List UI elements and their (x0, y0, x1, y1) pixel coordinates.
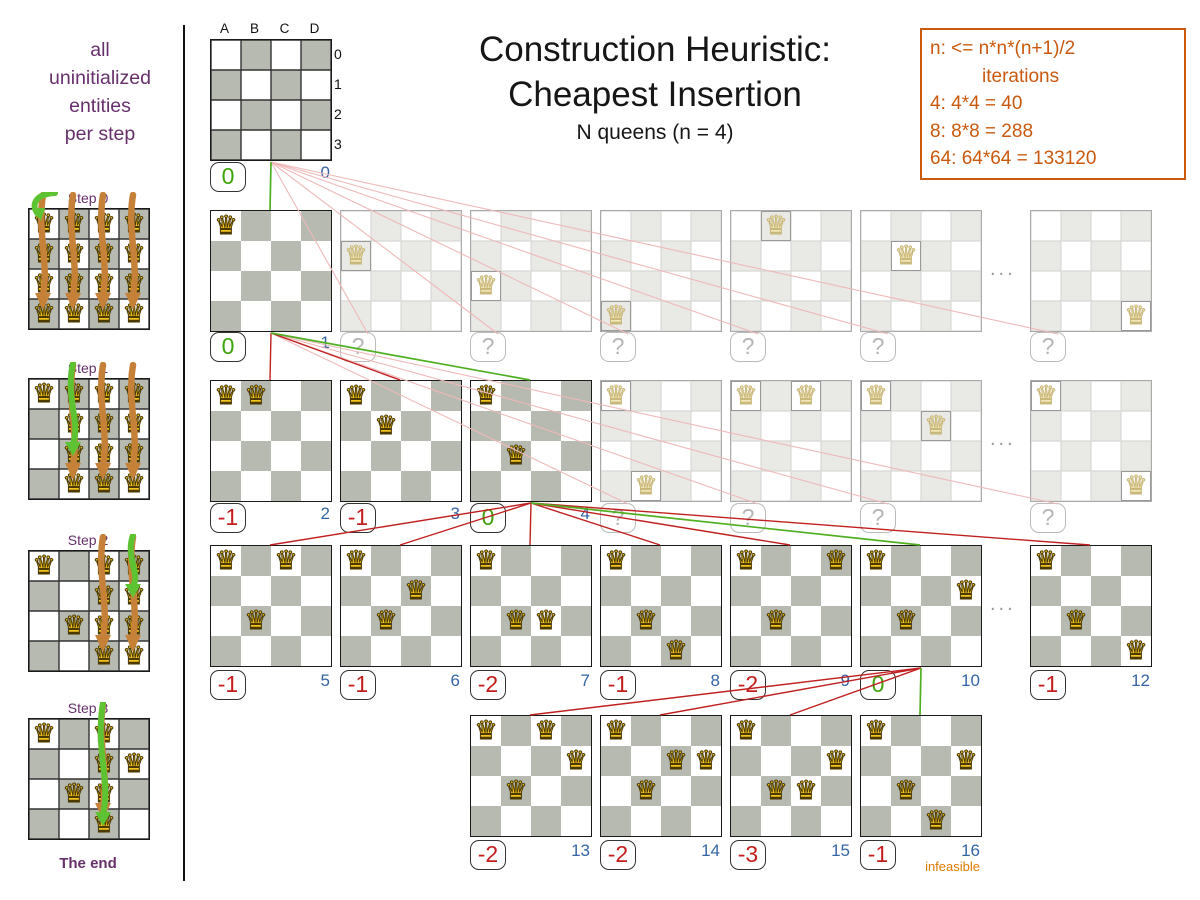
board-cell: ♛ (119, 209, 149, 239)
board-cell (211, 271, 241, 301)
board-cell (1091, 441, 1121, 471)
board-cell (501, 576, 531, 606)
board-cell (731, 241, 761, 271)
iteration-number: 5 (210, 671, 330, 691)
board-cell (791, 471, 821, 501)
board-cell: ♛ (761, 606, 791, 636)
iteration-number: 15 (730, 841, 850, 861)
board-cell (891, 576, 921, 606)
board-cell (561, 606, 591, 636)
board-cell (29, 439, 59, 469)
intro-line: uninitialized (18, 64, 182, 92)
queen-icon: ♛ (214, 381, 237, 411)
board-cell (271, 606, 301, 636)
board-cell: ♛ (471, 716, 501, 746)
chessboard: ♛ (210, 210, 332, 332)
column-label: C (270, 21, 300, 36)
queen-icon: ♛ (664, 636, 687, 666)
board-cell (951, 411, 981, 441)
board-cell (861, 576, 891, 606)
board-cell (601, 241, 631, 271)
board-cell (531, 301, 561, 331)
board-cell: ♛ (501, 441, 531, 471)
board-cell (861, 271, 891, 301)
board-cell (401, 381, 431, 411)
row-label: 2 (334, 106, 350, 122)
ellipsis: ... (990, 428, 1016, 451)
board-cell (531, 411, 561, 441)
board-cell (371, 301, 401, 331)
board-cell (119, 809, 149, 839)
board-cell (691, 381, 721, 411)
board-cell (241, 211, 271, 241)
queen-icon: ♛ (122, 269, 145, 299)
board-cell (471, 301, 501, 331)
board-cell (1121, 441, 1151, 471)
queen-icon: ♛ (734, 546, 757, 576)
board-cell (1091, 606, 1121, 636)
board-cell (761, 241, 791, 271)
board-cell (921, 716, 951, 746)
board-cell (59, 551, 89, 581)
iteration-number: 0 (210, 163, 330, 183)
board-cell (29, 581, 59, 611)
board-cell (471, 776, 501, 806)
board-cell: ♛ (29, 299, 59, 329)
board-cell (731, 636, 761, 666)
board-cell (271, 100, 301, 130)
board-cell (531, 806, 561, 836)
board-cell (501, 411, 531, 441)
board-cell: ♛ (791, 381, 821, 411)
chessboard: ♛♛♛♛♛♛♛♛♛♛ (28, 550, 150, 672)
queen-icon: ♛ (564, 746, 587, 776)
board-cell (241, 40, 271, 70)
divider-line (183, 25, 185, 881)
board-cell (821, 381, 851, 411)
board-cell: ♛ (601, 716, 631, 746)
queen-icon: ♛ (62, 409, 85, 439)
step-label: Step 3 (28, 700, 148, 716)
board-cell: ♛ (341, 241, 371, 271)
queen-icon: ♛ (1064, 606, 1087, 636)
chessboard: ♛♛ (340, 380, 462, 502)
board-cell (1061, 381, 1091, 411)
queen-icon: ♛ (534, 606, 557, 636)
board-cell (29, 749, 59, 779)
board-cell (471, 441, 501, 471)
board-cell (501, 241, 531, 271)
board-cell (861, 806, 891, 836)
board-cell (471, 806, 501, 836)
board-cell (301, 130, 331, 160)
queen-icon: ♛ (122, 551, 145, 581)
board-cell (471, 746, 501, 776)
board-cell: ♛ (501, 606, 531, 636)
step-label: Step 2 (28, 532, 148, 548)
queen-icon: ♛ (374, 606, 397, 636)
board-cell: ♛ (891, 241, 921, 271)
board-cell (821, 806, 851, 836)
board-cell: ♛ (119, 581, 149, 611)
board-cell (631, 576, 661, 606)
queen-icon: ♛ (274, 546, 297, 576)
board-cell (1031, 271, 1061, 301)
board-cell (59, 809, 89, 839)
board-cell (821, 716, 851, 746)
chessboard (210, 39, 332, 161)
board-cell (691, 441, 721, 471)
board-cell (401, 411, 431, 441)
board-cell (921, 776, 951, 806)
board-cell (1031, 301, 1061, 331)
board-cell (211, 636, 241, 666)
board-cell (561, 471, 591, 501)
board-cell (821, 411, 851, 441)
board-cell (471, 606, 501, 636)
board-cell (791, 211, 821, 241)
info-box-line: 4: 4*4 = 40 (930, 90, 1176, 118)
board-cell: ♛ (821, 546, 851, 576)
board-cell (241, 441, 271, 471)
board-cell (1031, 441, 1061, 471)
board-cell (951, 546, 981, 576)
board-cell (1061, 636, 1091, 666)
board-cell (371, 576, 401, 606)
queen-icon: ♛ (764, 606, 787, 636)
board-cell (401, 471, 431, 501)
board-cell (531, 381, 561, 411)
board-cell (431, 271, 461, 301)
queen-icon: ♛ (604, 301, 627, 331)
board-cell (561, 441, 591, 471)
board-cell (211, 471, 241, 501)
queen-icon: ♛ (1124, 636, 1147, 666)
board-cell: ♛ (59, 439, 89, 469)
board-cell: ♛ (601, 546, 631, 576)
queen-icon: ♛ (504, 441, 527, 471)
board-cell: ♛ (29, 239, 59, 269)
board-cell (661, 241, 691, 271)
queen-icon: ♛ (474, 546, 497, 576)
board-cell (471, 636, 501, 666)
board-cell (691, 716, 721, 746)
board-cell (371, 546, 401, 576)
board-cell (211, 40, 241, 70)
board-cell (1061, 241, 1091, 271)
board-cell: ♛ (861, 381, 891, 411)
board-cell (431, 241, 461, 271)
chessboard: ♛♛ (210, 380, 332, 502)
board-cell (241, 301, 271, 331)
board-cell (301, 211, 331, 241)
board-cell (431, 606, 461, 636)
board-cell: ♛ (661, 636, 691, 666)
board-cell: ♛ (59, 299, 89, 329)
board-cell (561, 546, 591, 576)
queen-icon: ♛ (634, 606, 657, 636)
board-cell (731, 576, 761, 606)
board-cell (821, 471, 851, 501)
board-cell (1091, 471, 1121, 501)
queen-icon: ♛ (62, 269, 85, 299)
board-cell (691, 776, 721, 806)
intro-line: per step (18, 120, 182, 148)
queen-icon: ♛ (954, 746, 977, 776)
board-cell (691, 636, 721, 666)
queen-icon: ♛ (92, 409, 115, 439)
score-badge: ? (730, 503, 766, 533)
board-cell: ♛ (59, 409, 89, 439)
queen-icon: ♛ (62, 209, 85, 239)
board-cell (1091, 211, 1121, 241)
board-cell: ♛ (731, 381, 761, 411)
queen-icon: ♛ (864, 381, 887, 411)
score-badge: ? (470, 332, 506, 362)
board-cell (29, 409, 59, 439)
board-cell: ♛ (89, 581, 119, 611)
board-cell (341, 301, 371, 331)
board-cell: ♛ (119, 641, 149, 671)
board-cell (371, 241, 401, 271)
queen-icon: ♛ (764, 776, 787, 806)
queen-icon: ♛ (122, 409, 145, 439)
board-cell: ♛ (89, 409, 119, 439)
board-cell (271, 576, 301, 606)
board-cell: ♛ (89, 239, 119, 269)
board-cell (1121, 576, 1151, 606)
board-cell: ♛ (661, 746, 691, 776)
board-cell: ♛ (89, 779, 119, 809)
queen-icon: ♛ (924, 411, 947, 441)
title-line1: Construction Heuristic: (479, 30, 831, 69)
queen-icon: ♛ (894, 776, 917, 806)
board-cell (1061, 441, 1091, 471)
board-cell (211, 441, 241, 471)
board-cell (601, 411, 631, 441)
chessboard: ♛♛♛♛♛♛♛♛♛♛♛♛♛ (28, 378, 150, 500)
board-cell (761, 381, 791, 411)
board-cell (431, 471, 461, 501)
board-cell (531, 576, 561, 606)
board-cell (861, 746, 891, 776)
board-cell: ♛ (951, 746, 981, 776)
board-cell (821, 441, 851, 471)
board-cell (1031, 211, 1061, 241)
queen-icon: ♛ (92, 469, 115, 499)
board-cell: ♛ (601, 381, 631, 411)
queen-icon: ♛ (794, 381, 817, 411)
board-cell (211, 301, 241, 331)
board-cell (791, 271, 821, 301)
queen-icon: ♛ (92, 299, 115, 329)
board-cell: ♛ (691, 746, 721, 776)
board-cell: ♛ (1031, 546, 1061, 576)
board-cell (691, 576, 721, 606)
board-cell (921, 746, 951, 776)
board-cell (661, 776, 691, 806)
board-cell (891, 546, 921, 576)
board-cell (371, 271, 401, 301)
board-cell (921, 606, 951, 636)
board-cell (271, 381, 301, 411)
board-cell (791, 806, 821, 836)
board-cell (271, 471, 301, 501)
board-cell: ♛ (371, 411, 401, 441)
board-cell: ♛ (631, 606, 661, 636)
queen-icon: ♛ (634, 471, 657, 501)
queen-icon: ♛ (32, 379, 55, 409)
board-cell (501, 806, 531, 836)
board-cell (1061, 546, 1091, 576)
board-cell (431, 411, 461, 441)
board-cell (1121, 411, 1151, 441)
queen-icon: ♛ (92, 379, 115, 409)
board-cell (631, 381, 661, 411)
board-cell: ♛ (29, 379, 59, 409)
board-cell: ♛ (531, 716, 561, 746)
board-cell (271, 636, 301, 666)
board-cell (601, 776, 631, 806)
board-cell (1061, 301, 1091, 331)
board-cell (401, 636, 431, 666)
queen-icon: ♛ (794, 776, 817, 806)
board-cell (501, 746, 531, 776)
queen-icon: ♛ (214, 211, 237, 241)
queen-icon: ♛ (62, 299, 85, 329)
board-cell (1091, 301, 1121, 331)
board-cell (761, 301, 791, 331)
queen-icon: ♛ (1034, 546, 1057, 576)
board-cell (951, 776, 981, 806)
board-cell: ♛ (921, 806, 951, 836)
board-cell (821, 636, 851, 666)
board-cell: ♛ (891, 776, 921, 806)
score-badge: ? (730, 332, 766, 362)
board-cell (371, 381, 401, 411)
board-cell (791, 411, 821, 441)
title-line2: Cheapest Insertion (508, 75, 802, 114)
queen-icon: ♛ (374, 411, 397, 441)
queen-icon: ♛ (474, 716, 497, 746)
column-label: B (240, 21, 270, 36)
board-cell (1091, 271, 1121, 301)
board-cell (561, 301, 591, 331)
board-cell (631, 241, 661, 271)
board-cell: ♛ (89, 749, 119, 779)
board-cell (341, 636, 371, 666)
chessboard: ♛ (1030, 210, 1152, 332)
board-cell (1031, 636, 1061, 666)
board-cell (861, 211, 891, 241)
board-cell (951, 471, 981, 501)
board-cell (1091, 636, 1121, 666)
board-cell (431, 546, 461, 576)
board-cell (891, 381, 921, 411)
board-cell (241, 576, 271, 606)
board-cell (471, 411, 501, 441)
board-cell (761, 441, 791, 471)
board-cell (531, 271, 561, 301)
board-cell: ♛ (861, 546, 891, 576)
iterations-info-box: n: <= n*n*(n+1)/2iterations4: 4*4 = 408:… (920, 28, 1186, 180)
queen-icon: ♛ (474, 271, 497, 301)
board-cell (821, 776, 851, 806)
board-cell (861, 776, 891, 806)
score-badge: ? (860, 503, 896, 533)
board-cell: ♛ (89, 469, 119, 499)
score-badge: ? (600, 503, 636, 533)
queen-icon: ♛ (604, 716, 627, 746)
board-cell (891, 746, 921, 776)
board-cell: ♛ (241, 381, 271, 411)
board-cell (601, 636, 631, 666)
score-badge: ? (600, 332, 636, 362)
chessboard: ♛♛♛ (860, 545, 982, 667)
board-cell: ♛ (471, 546, 501, 576)
queen-icon: ♛ (92, 809, 115, 839)
queen-icon: ♛ (734, 381, 757, 411)
board-cell (631, 716, 661, 746)
board-cell (501, 716, 531, 746)
board-cell: ♛ (501, 776, 531, 806)
board-cell (631, 271, 661, 301)
board-cell (211, 241, 241, 271)
board-cell (891, 441, 921, 471)
row-label: 1 (334, 76, 350, 92)
queen-icon: ♛ (604, 546, 627, 576)
board-cell (531, 441, 561, 471)
iteration-number: 3 (340, 504, 460, 524)
board-cell: ♛ (401, 576, 431, 606)
board-cell (271, 411, 301, 441)
board-cell (301, 576, 331, 606)
queen-icon: ♛ (92, 719, 115, 749)
iteration-number: 10 (860, 671, 980, 691)
iteration-number: 2 (210, 504, 330, 524)
queen-icon: ♛ (92, 611, 115, 641)
board-cell (891, 471, 921, 501)
board-cell: ♛ (29, 719, 59, 749)
board-cell (951, 806, 981, 836)
board-cell: ♛ (561, 746, 591, 776)
board-cell (951, 606, 981, 636)
board-cell: ♛ (471, 271, 501, 301)
board-cell (241, 271, 271, 301)
board-cell (301, 100, 331, 130)
queen-icon: ♛ (534, 716, 557, 746)
board-cell (371, 636, 401, 666)
board-cell (761, 636, 791, 666)
board-cell (601, 271, 631, 301)
board-cell (661, 546, 691, 576)
iteration-number: 1 (210, 333, 330, 353)
board-cell (891, 211, 921, 241)
board-cell (301, 241, 331, 271)
board-cell (921, 381, 951, 411)
board-cell (1031, 411, 1061, 441)
queen-icon: ♛ (32, 269, 55, 299)
board-cell (791, 576, 821, 606)
board-cell (891, 636, 921, 666)
board-cell (371, 441, 401, 471)
queen-icon: ♛ (62, 611, 85, 641)
board-cell (761, 411, 791, 441)
board-cell (791, 716, 821, 746)
board-cell (301, 606, 331, 636)
board-cell (731, 806, 761, 836)
queen-icon: ♛ (122, 209, 145, 239)
